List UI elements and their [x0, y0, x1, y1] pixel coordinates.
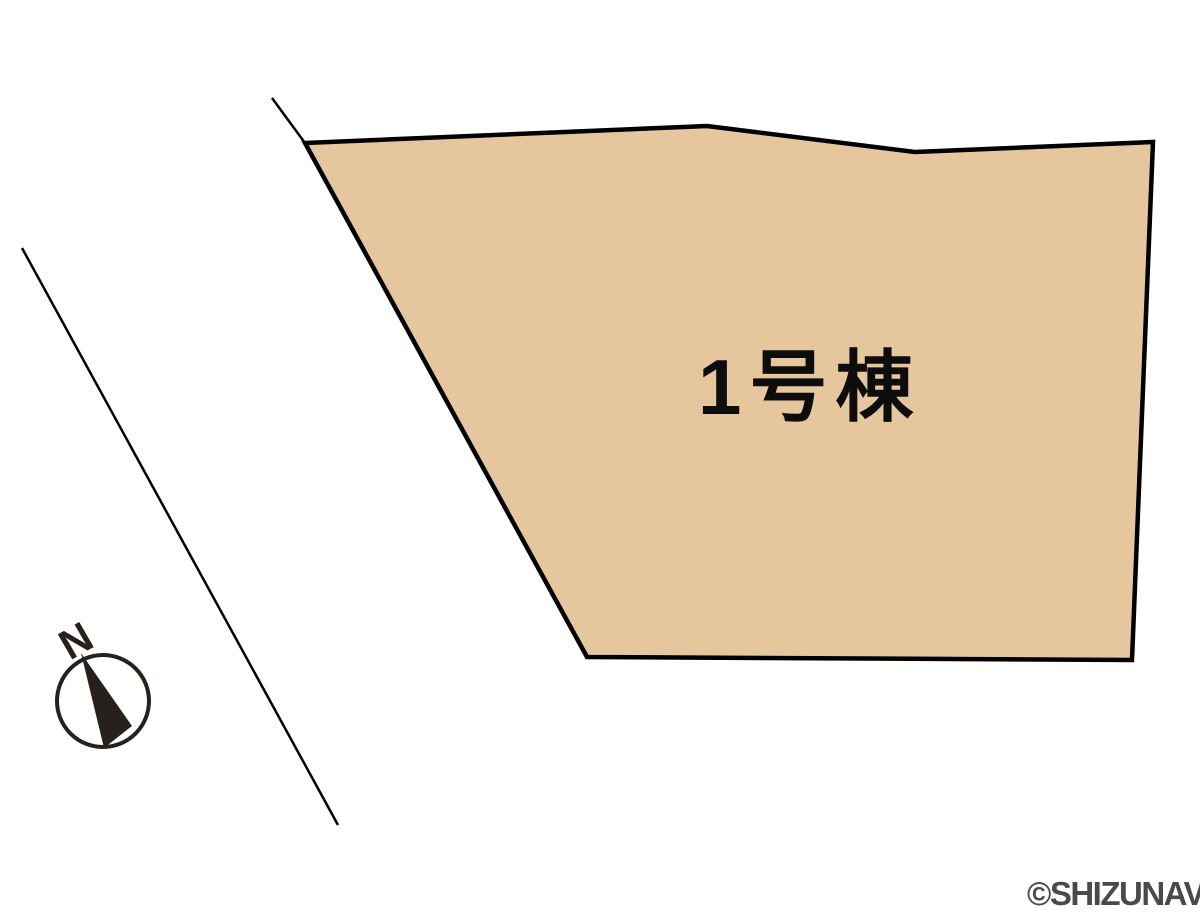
compass-rose: N [51, 613, 149, 748]
plot-label: 1号棟 [698, 348, 921, 426]
compass-north-label: N [51, 613, 101, 669]
road-boundary-line [22, 248, 338, 825]
watermark: ©SHIZUNAVI [1027, 877, 1200, 910]
site-plan-drawing: N [0, 0, 1200, 912]
compass-needle-icon [81, 653, 132, 748]
site-plan-canvas: N 1号棟 ©SHIZUNAVI [0, 0, 1200, 912]
boundary-extension-line [272, 98, 305, 143]
